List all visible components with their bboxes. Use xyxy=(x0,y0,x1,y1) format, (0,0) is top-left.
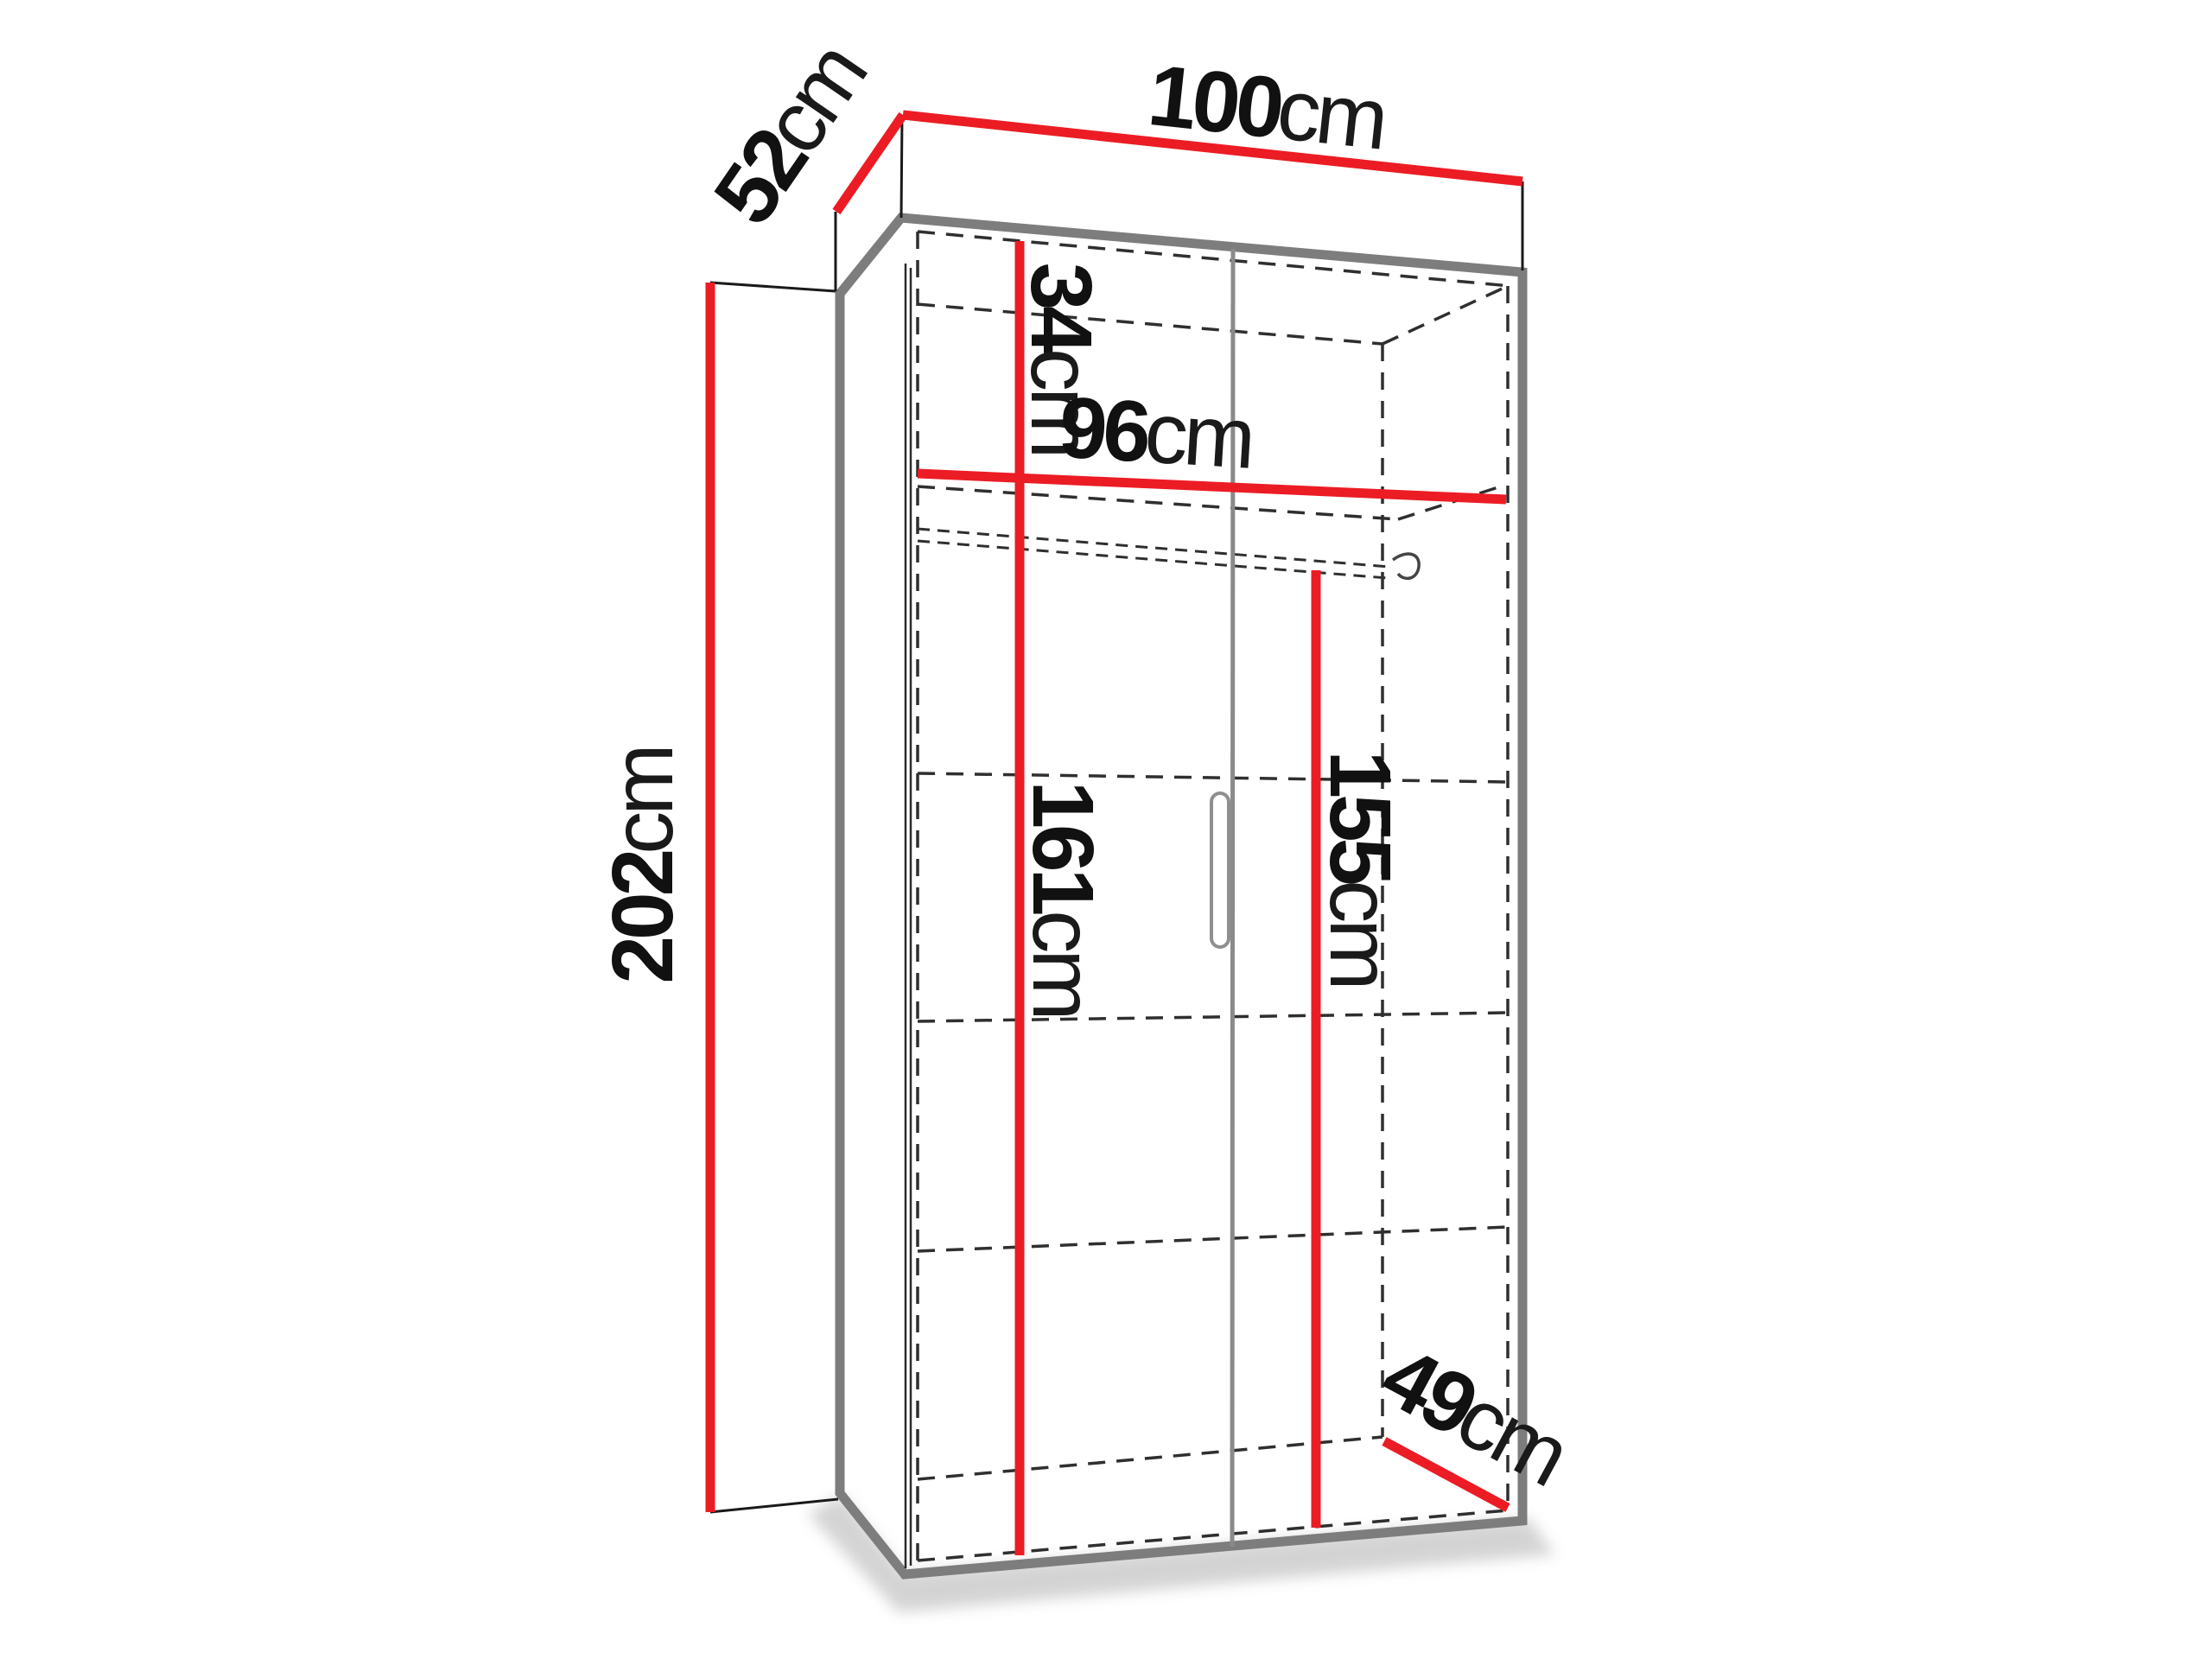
extension-line-height-top xyxy=(710,283,836,291)
label-interior-height-left: 161cm xyxy=(1014,780,1111,1016)
hanging-rail-front-line xyxy=(918,529,1389,567)
door-handle xyxy=(1211,793,1229,947)
label-hanging-height: 155cm xyxy=(1312,750,1408,986)
extension-line-top-apex xyxy=(901,115,902,218)
interior-top-front-edge xyxy=(918,304,1382,344)
diagram-canvas: 100cm 52cm 202cm 34cm 96cm 161cm 155cm 4… xyxy=(0,0,2212,1659)
label-interior-width: 96cm xyxy=(1057,378,1255,486)
label-overall-height: 202cm xyxy=(594,747,691,983)
wardrobe-dimension-diagram: 100cm 52cm 202cm 34cm 96cm 161cm 155cm 4… xyxy=(0,0,2212,1659)
interior-top-right-depth-edge xyxy=(1382,286,1508,344)
hidden-shelf-line-1 xyxy=(918,773,1508,782)
hidden-shelf-line-2 xyxy=(918,1013,1508,1021)
label-overall-width: 100cm xyxy=(1144,47,1389,168)
label-overall-depth: 52cm xyxy=(696,28,884,241)
hanger-hook-icon xyxy=(1393,554,1419,578)
hidden-shelf-line-3 xyxy=(918,1227,1508,1251)
label-interior-depth: 49cm xyxy=(1367,1327,1582,1503)
